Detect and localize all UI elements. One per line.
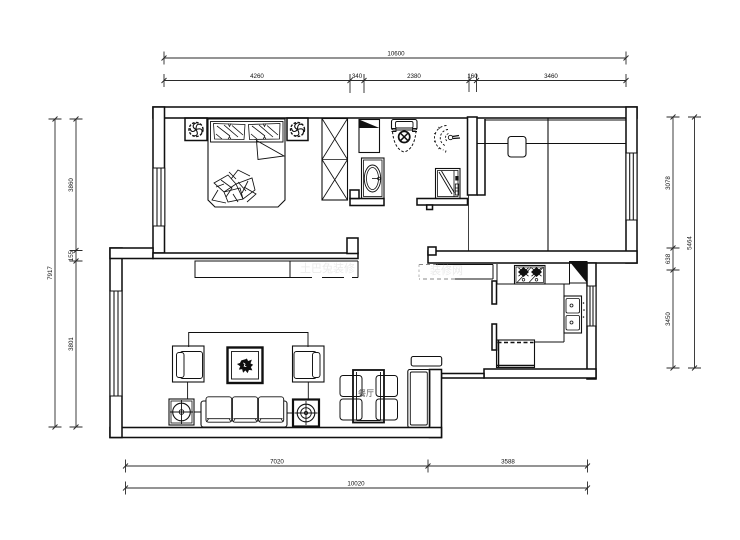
svg-text:7020: 7020 <box>270 459 284 466</box>
svg-text:3860: 3860 <box>68 178 75 192</box>
svg-text:2380: 2380 <box>407 73 421 80</box>
svg-text:4260: 4260 <box>250 73 264 80</box>
svg-text:3801: 3801 <box>68 337 75 351</box>
svg-text:638: 638 <box>665 253 672 264</box>
svg-text:155: 155 <box>68 250 75 261</box>
svg-text:160: 160 <box>467 73 478 80</box>
svg-text:5464: 5464 <box>687 236 694 250</box>
svg-text:3450: 3450 <box>665 312 672 326</box>
svg-text:3078: 3078 <box>665 176 672 190</box>
svg-text:装修网: 装修网 <box>430 263 463 277</box>
svg-text:3460: 3460 <box>544 73 558 80</box>
svg-text:餐厅: 餐厅 <box>358 389 374 398</box>
svg-text:10020: 10020 <box>347 481 365 488</box>
svg-text:土巴兔装修: 土巴兔装修 <box>300 261 355 275</box>
svg-text:10600: 10600 <box>387 51 405 58</box>
svg-text:3588: 3588 <box>501 459 515 466</box>
svg-text:7917: 7917 <box>47 266 54 280</box>
svg-text:340: 340 <box>352 73 363 80</box>
